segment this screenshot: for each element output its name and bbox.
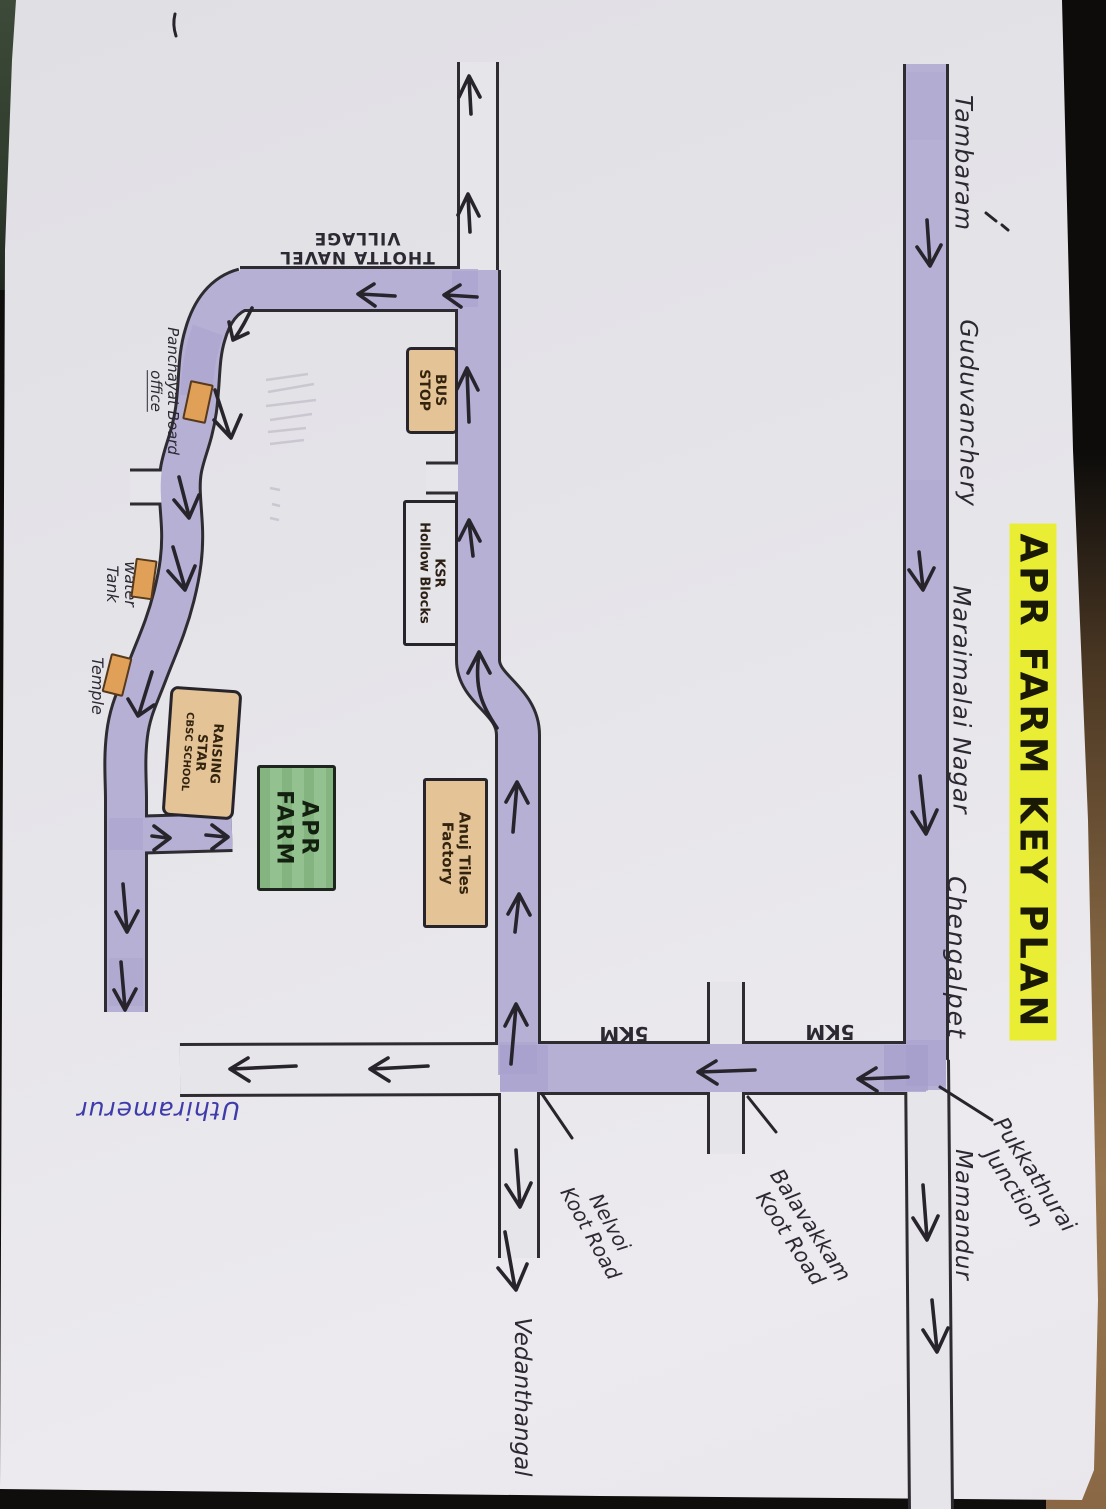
landmark-label-panchayat-board-office: Panchayat Board office: [147, 327, 181, 455]
label-pointer-lines: [174, 14, 1008, 1138]
place-label-thotta-navel-village: THOTTA NAVEL VILLAGE: [279, 228, 434, 266]
place-label-vedanthangal: Vedanthangal: [508, 1317, 534, 1476]
apr-farm-box: APR FARM: [257, 765, 336, 891]
place-label-maraimalai-nagar: Maraimalai Nagar: [948, 586, 975, 815]
place-label-guduvanchery: Guduvanchery: [955, 319, 982, 507]
bus-stop-box: BUS STOP: [406, 347, 458, 434]
map-title: APR FARM KEY PLAN: [1010, 524, 1057, 1041]
place-label-chengalpet: Chengalpet: [942, 876, 970, 1040]
distance-label-5km-west: 5KM: [599, 1023, 648, 1045]
place-label-uthiramerur: Uthiramerur: [76, 1096, 240, 1124]
photo-of-hand-drawn-map: APR FARM KEY PLAN Tambaram Guduvanchery …: [0, 0, 1106, 1509]
ksr-hollow-blocks-box: KSR Hollow Blocks: [403, 500, 458, 646]
raising-star-school-box: RAISING STAR CBSC SCHOOL: [162, 686, 243, 821]
place-label-mamandur: Mamandur: [949, 1149, 975, 1281]
distance-label-5km-east: 5KM: [805, 1021, 854, 1043]
pencil-scribbles: [266, 374, 316, 520]
place-label-tambaram: Tambaram: [950, 95, 977, 231]
anuj-tiles-factory-box: Anuj Tiles Factory: [423, 778, 488, 928]
